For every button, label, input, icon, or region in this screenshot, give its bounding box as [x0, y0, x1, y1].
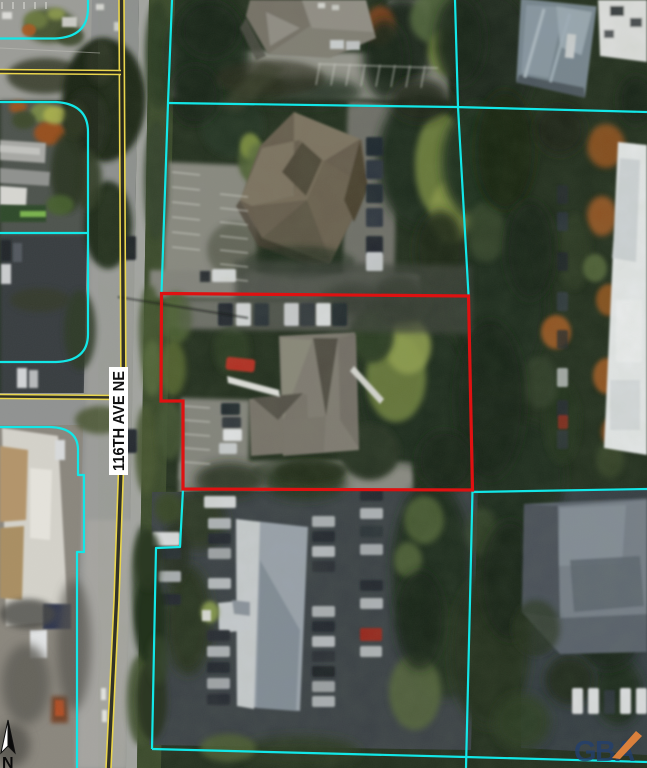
svg-text:N: N — [2, 755, 14, 768]
svg-text:116TH AVE NE: 116TH AVE NE — [111, 371, 128, 471]
